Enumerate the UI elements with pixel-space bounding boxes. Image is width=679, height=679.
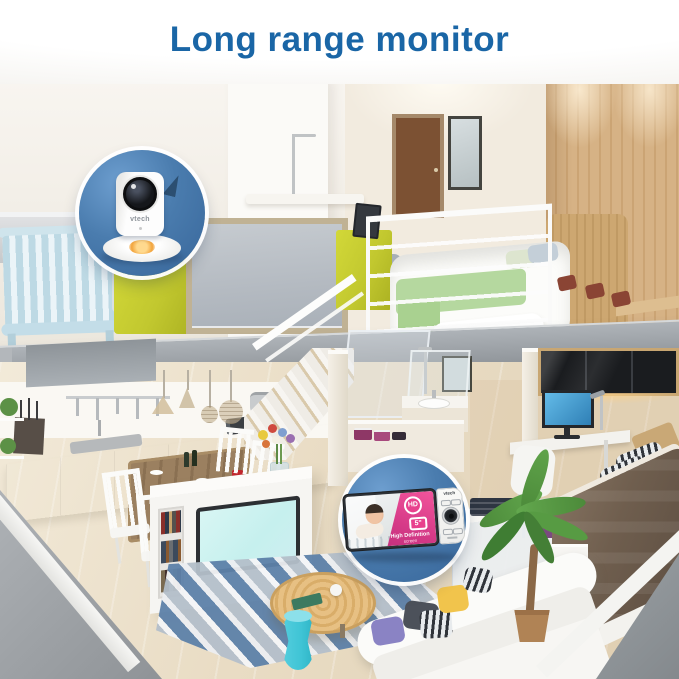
shelf-board [0, 456, 24, 459]
parent-monitor-unit: HD 5" High Definition screen vtech [342, 486, 466, 554]
pendant-cord [230, 370, 232, 402]
monitor-shadow [350, 552, 458, 562]
monitor-button [443, 529, 453, 536]
panel-fine-print [447, 536, 457, 539]
pendant-cord [163, 370, 165, 398]
chair-leg [115, 538, 122, 564]
sink-basin [418, 398, 450, 409]
sink-faucet [432, 390, 436, 398]
wall-mirror [448, 116, 482, 190]
sink-faucet [98, 420, 101, 436]
knife-block [13, 417, 45, 455]
shelf-board [0, 418, 24, 421]
book-spines [161, 539, 181, 563]
wine-bottle [184, 452, 189, 467]
camera-led [139, 227, 142, 230]
shelf-plant [0, 438, 16, 454]
camera-brand-logo: vtech [116, 216, 164, 223]
baby-camera-unit: vtech [79, 150, 205, 276]
gray-headboard-panel [186, 218, 348, 334]
sofa-pillow-striped [419, 609, 453, 639]
pendant-lamp-mesh [201, 406, 218, 423]
pendant-cord [209, 370, 211, 408]
pendant-cord [187, 370, 189, 390]
page-title: Long range monitor [0, 20, 679, 60]
camera-lens [123, 177, 157, 211]
monitor-control-panel: vtech [436, 487, 466, 545]
palm-pot [510, 610, 554, 642]
book-spines [161, 510, 181, 534]
flower-bloom [286, 434, 295, 443]
bedroom-wall-cabinets [538, 348, 679, 396]
towel-stack [354, 428, 372, 440]
flower-stems [274, 444, 282, 464]
towel-stack [392, 432, 406, 440]
mirror-glass [451, 119, 479, 187]
pendant-lamp-mesh [219, 400, 243, 424]
hanging-utensil [96, 398, 99, 420]
flower-bloom [268, 424, 277, 433]
coffee-table-leg [340, 624, 345, 638]
computer-monitor [542, 390, 594, 428]
desk-lamp [600, 396, 603, 430]
monitor-callout: HD 5" High Definition screen vtech [342, 458, 466, 582]
knife [36, 401, 38, 420]
palm-plant [458, 452, 608, 644]
camera-antenna [163, 173, 181, 197]
knife [28, 398, 30, 420]
kitchenette-faucet-arm [292, 134, 316, 137]
monitor-button [453, 528, 463, 535]
flower-bloom [272, 436, 280, 444]
monitor-stand-foot [554, 435, 580, 439]
camera-night-light [129, 240, 155, 254]
monitor-screen: HD 5" High Definition screen [345, 491, 436, 549]
flower-bloom [258, 430, 268, 440]
bedroom-door [392, 114, 444, 218]
camera-callout: vtech [79, 150, 205, 276]
monitor-button [451, 499, 461, 506]
bathroom-left-wall [328, 350, 348, 486]
palm-trunk [525, 544, 538, 616]
plate [150, 470, 163, 475]
kitchenette-faucet [292, 134, 295, 194]
hanging-utensil [116, 398, 119, 414]
hanging-utensil [136, 398, 139, 419]
cyan-stool-top [284, 610, 312, 622]
coffee-table-vase [330, 584, 342, 596]
monitor-brand-logo: vtech [440, 491, 458, 497]
product-image: Long range monitor [0, 0, 679, 679]
wine-bottle [192, 450, 197, 466]
monitor-button [441, 500, 451, 507]
kitchenette-counter [246, 194, 364, 204]
hanging-utensil [76, 398, 79, 416]
flower-bloom [262, 440, 270, 448]
lens-glint [131, 184, 136, 189]
shelf-plant [0, 398, 18, 416]
towel-stack [374, 430, 390, 441]
knife [20, 400, 22, 420]
screen-size-badge: 5" [409, 516, 428, 530]
range-hood [26, 339, 156, 388]
door-handle [434, 168, 438, 172]
